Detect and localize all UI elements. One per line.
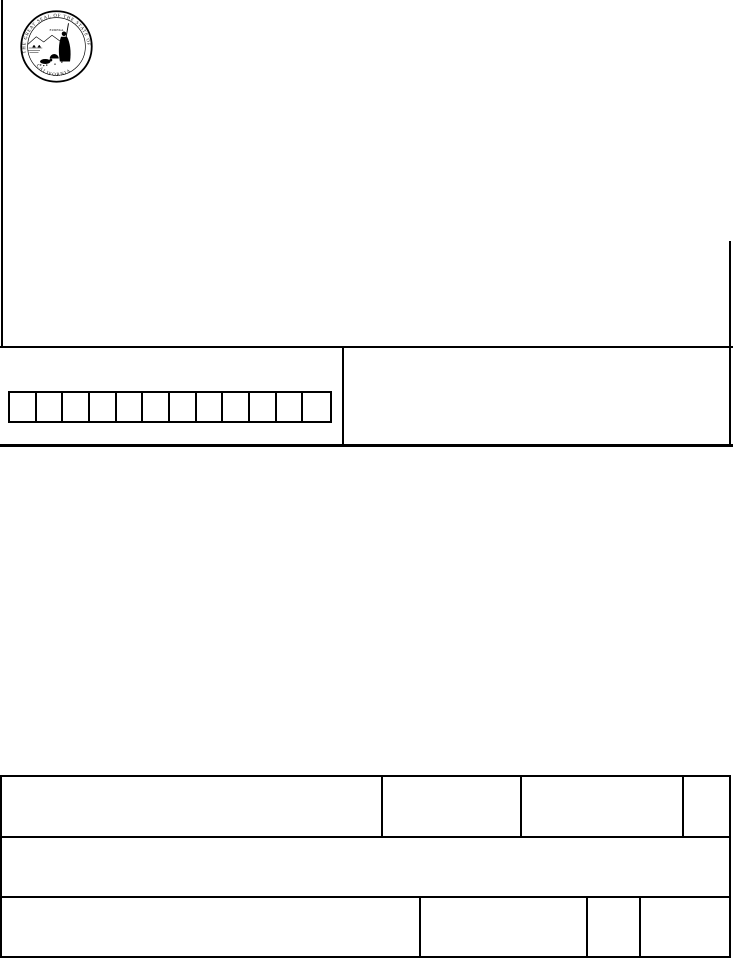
- row3-cell-2[interactable]: [421, 898, 588, 956]
- character-box[interactable]: [143, 393, 170, 421]
- california-state-seal: THE GREAT SEAL OF THE STATE OF CALIFORNI…: [19, 9, 94, 84]
- character-grid: [8, 391, 332, 423]
- seal-water-lines: [28, 45, 42, 53]
- form-page: THE GREAT SEAL OF THE STATE OF CALIFORNI…: [0, 0, 733, 964]
- character-box[interactable]: [117, 393, 144, 421]
- header-band-right-box[interactable]: [344, 348, 733, 444]
- seal-ground-detail: [40, 63, 56, 66]
- table-row-2: [2, 838, 729, 898]
- seal-dome: [50, 54, 59, 59]
- row1-cell-3[interactable]: [522, 777, 684, 836]
- seal-motto-text: EUREKA: [50, 28, 64, 32]
- seal-bear: [40, 59, 52, 64]
- character-box[interactable]: [63, 393, 90, 421]
- character-box[interactable]: [303, 393, 330, 421]
- seal-bottom-text: CALIFORNIA: [35, 64, 73, 78]
- header-band-left-box: [0, 348, 344, 444]
- row1-cell-2[interactable]: [383, 777, 522, 836]
- table-row-1: [2, 777, 729, 838]
- character-box[interactable]: [90, 393, 117, 421]
- character-box[interactable]: [250, 393, 277, 421]
- seal-mountains: [28, 35, 60, 44]
- bottom-table: [0, 775, 731, 958]
- row1-cell-4[interactable]: [684, 777, 729, 836]
- left-page-border-line: [1, 0, 3, 348]
- row1-cell-1[interactable]: [2, 777, 383, 836]
- row3-cell-4[interactable]: [641, 898, 729, 956]
- character-box[interactable]: [10, 393, 37, 421]
- character-box[interactable]: [197, 393, 224, 421]
- row3-cell-1[interactable]: [2, 898, 421, 956]
- character-box[interactable]: [277, 393, 304, 421]
- row3-cell-3[interactable]: [588, 898, 641, 956]
- table-row-3: [2, 898, 729, 956]
- row2-cell-1[interactable]: [2, 838, 729, 896]
- header-band: [0, 346, 733, 447]
- character-box[interactable]: [223, 393, 250, 421]
- character-box[interactable]: [37, 393, 64, 421]
- character-box[interactable]: [170, 393, 197, 421]
